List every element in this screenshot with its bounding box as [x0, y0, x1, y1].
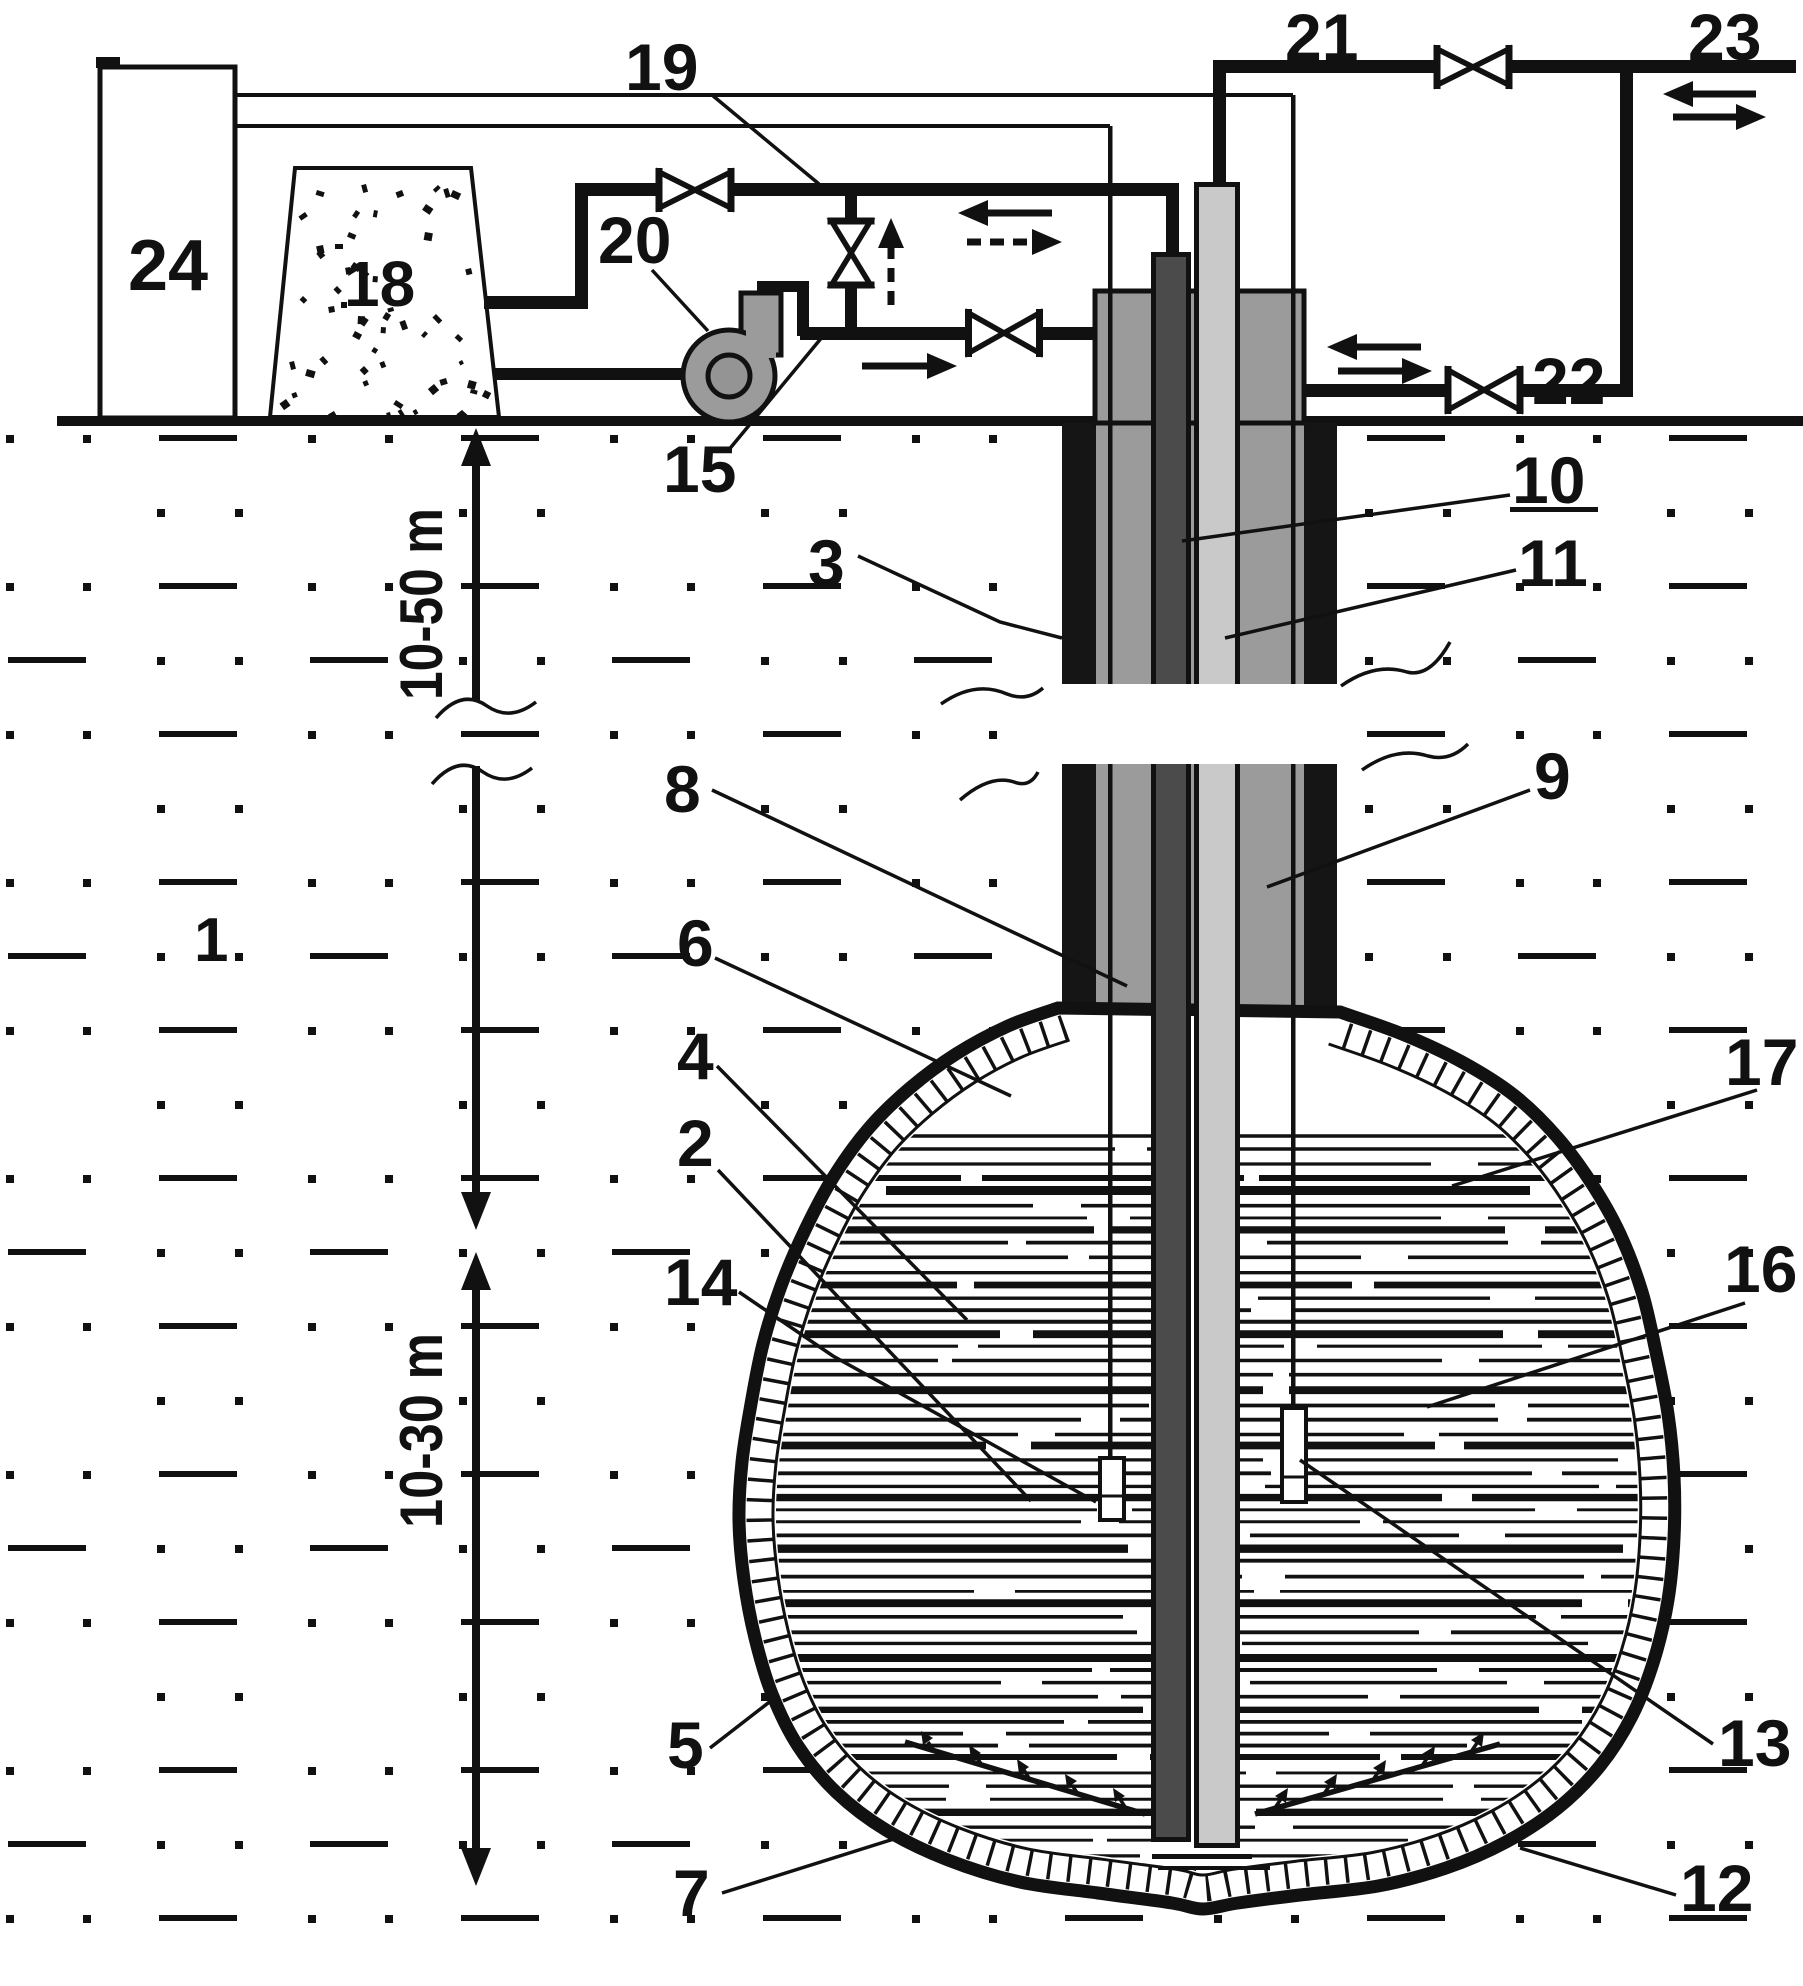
svg-text:17: 17 [1725, 1025, 1798, 1099]
svg-text:22: 22 [1532, 344, 1605, 418]
svg-text:20: 20 [598, 203, 671, 277]
svg-text:18: 18 [344, 248, 415, 320]
svg-text:19: 19 [625, 30, 698, 104]
svg-text:13: 13 [1718, 1706, 1791, 1780]
svg-text:7: 7 [673, 1856, 710, 1930]
svg-text:5: 5 [667, 1708, 704, 1782]
svg-text:23: 23 [1688, 0, 1761, 74]
svg-text:8: 8 [664, 752, 701, 826]
svg-text:11: 11 [1518, 526, 1588, 600]
svg-text:3: 3 [808, 526, 845, 600]
svg-text:21: 21 [1285, 0, 1358, 74]
svg-text:12: 12 [1680, 1851, 1753, 1925]
svg-text:10-50 m: 10-50 m [388, 508, 455, 700]
svg-text:4: 4 [677, 1019, 714, 1093]
svg-text:24: 24 [128, 226, 208, 306]
svg-text:14: 14 [664, 1245, 738, 1319]
svg-text:2: 2 [677, 1106, 714, 1180]
svg-text:10: 10 [1512, 443, 1585, 517]
svg-text:15: 15 [663, 432, 736, 506]
svg-text:16: 16 [1724, 1232, 1797, 1306]
svg-text:1: 1 [194, 906, 228, 975]
svg-text:9: 9 [1534, 739, 1571, 813]
svg-text:10-30 m: 10-30 m [388, 1333, 455, 1528]
svg-text:6: 6 [677, 906, 714, 980]
